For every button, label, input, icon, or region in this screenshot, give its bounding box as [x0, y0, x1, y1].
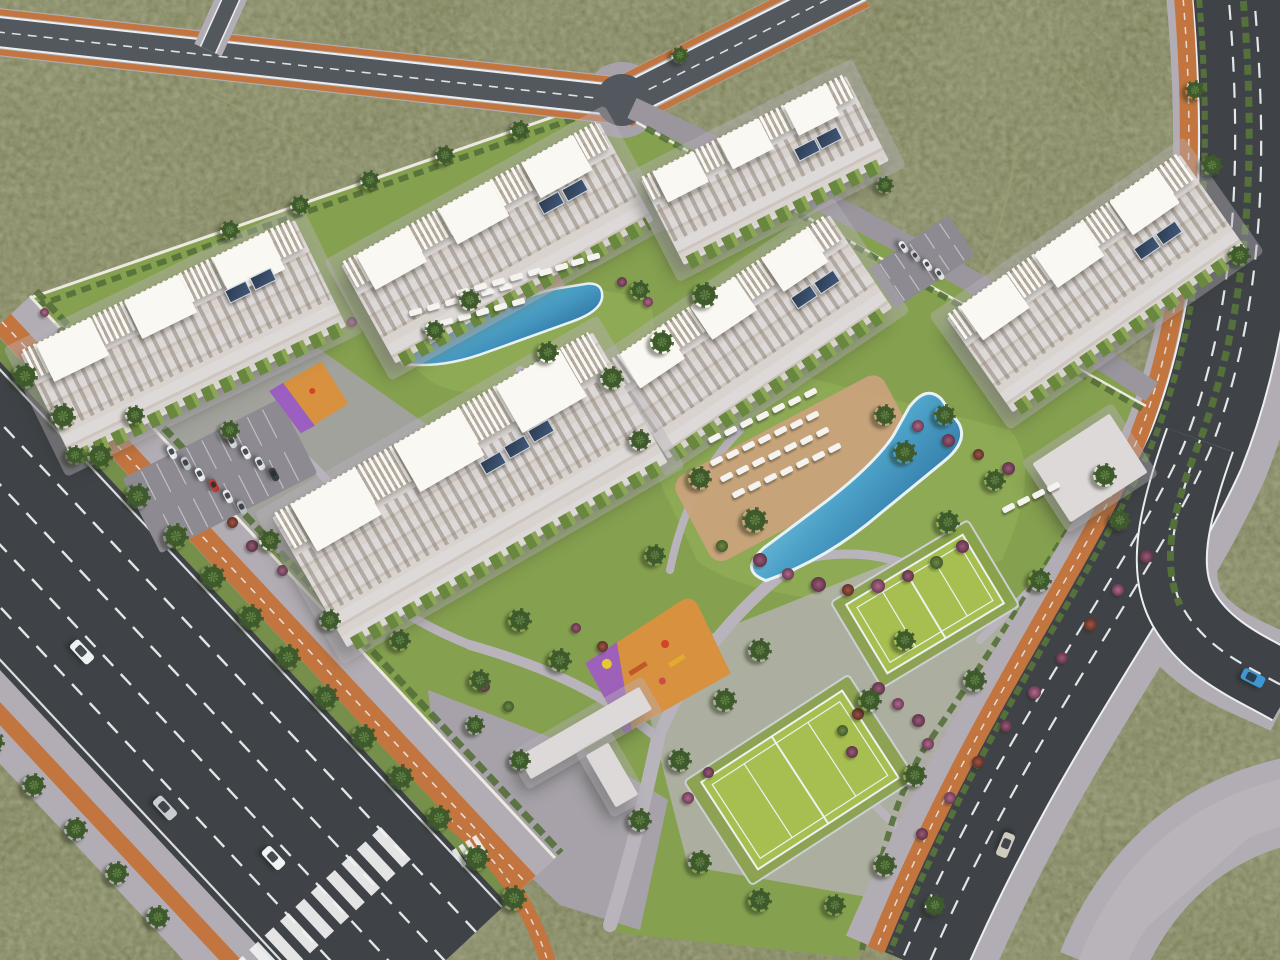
ground-plane	[0, 0, 1280, 960]
aerial-site-render	[0, 0, 1280, 960]
